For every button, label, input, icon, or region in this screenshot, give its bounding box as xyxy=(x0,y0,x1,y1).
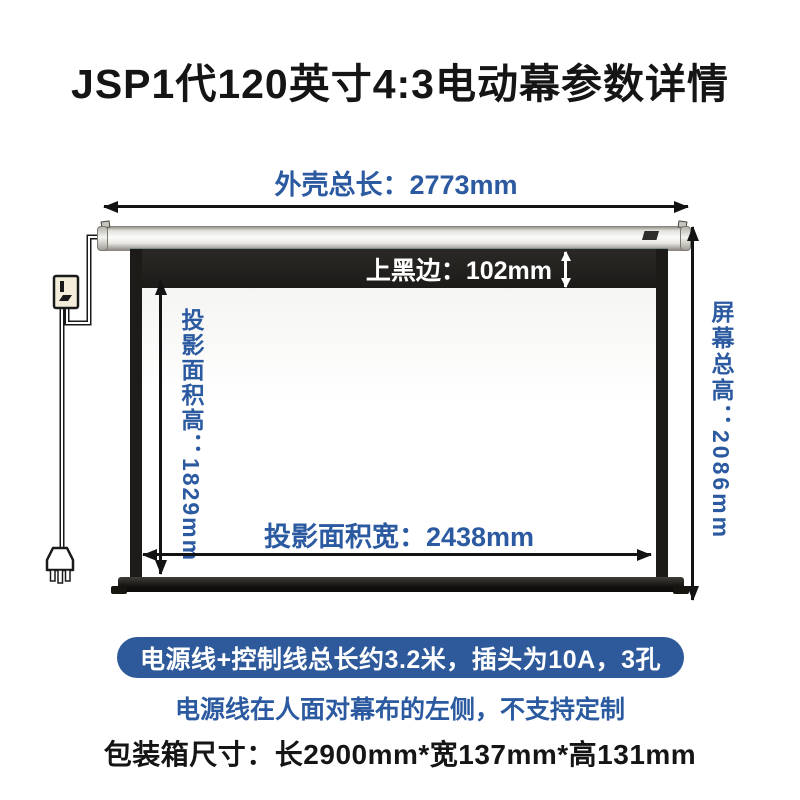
bottom-weight-bar xyxy=(118,577,684,592)
screen-total-height-label: 屏幕总高：2086mm xyxy=(704,300,738,562)
page-title: JSP1代120英寸4:3电动幕参数详情 xyxy=(0,50,800,110)
power-plug-icon xyxy=(47,548,73,583)
package-size-note: 包装箱尺寸：长2900mm*宽137mm*高131mm xyxy=(0,733,800,773)
bottom-bar-foot-left xyxy=(111,586,127,594)
brand-logo xyxy=(642,231,659,240)
cable-info-pill: 电源线+控制线总长约3.2米，插头为10A，3孔 xyxy=(117,637,684,678)
control-box-switch xyxy=(60,281,64,292)
control-box xyxy=(54,276,78,308)
casing-length-arrow xyxy=(104,205,688,208)
screen-total-height-arrow xyxy=(691,227,694,600)
top-black-border-arrow xyxy=(564,252,567,287)
top-black-border-label: 上黑边：102mm xyxy=(330,255,552,287)
projection-width-arrow xyxy=(143,553,651,556)
projection-width-label: 投影面积宽：2438mm xyxy=(142,515,656,554)
casing-end-cap-left xyxy=(97,226,108,251)
casing-length-label: 外壳总长：2773mm xyxy=(104,163,688,202)
power-cable-assembly xyxy=(30,225,120,595)
screen-right-border xyxy=(656,249,668,579)
cable-side-note: 电源线在人面对幕布的左侧，不支持定制 xyxy=(0,690,800,726)
product-detail-image: JSP1代120英寸4:3电动幕参数详情 外壳总长：2773mm xyxy=(0,0,800,800)
screen-left-border xyxy=(130,249,142,579)
